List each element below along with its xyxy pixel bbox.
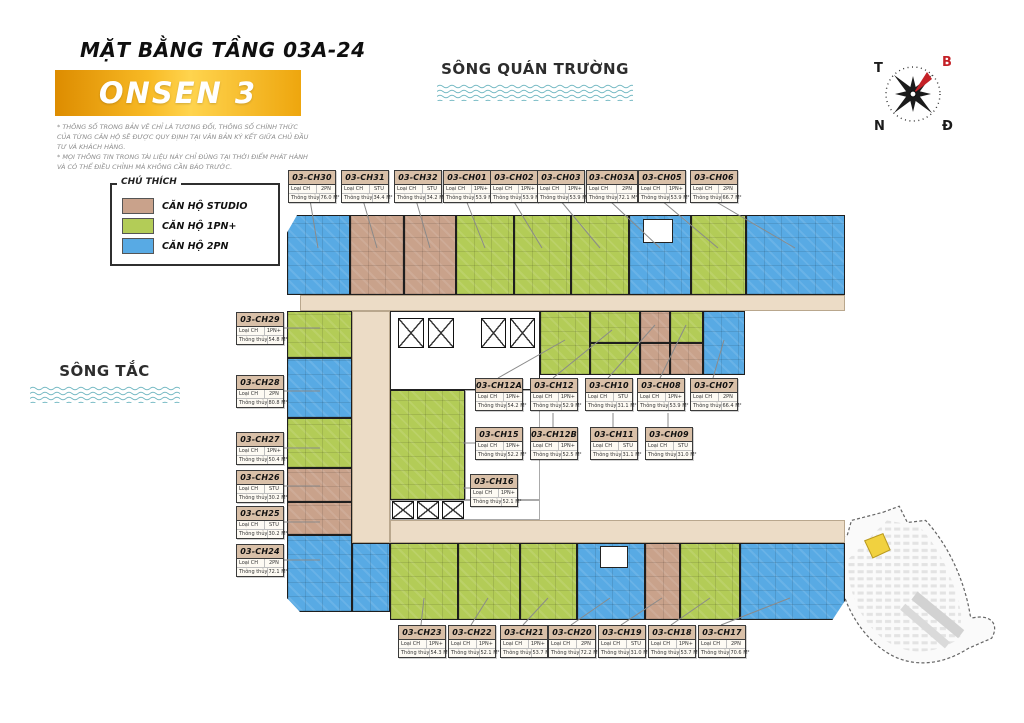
unit-area-label: Thông thủy — [476, 402, 507, 410]
unit-type-row: Loại CHSTU — [591, 442, 637, 450]
unit-id: 03-CH01 — [444, 171, 490, 185]
unit-area-value: 66.7 M² — [722, 194, 741, 202]
unit-type-value: STU — [627, 640, 645, 648]
unit-tag-03-CH19: 03-CH19Loại CHSTUThông thủy31.0 M² — [598, 625, 646, 658]
unit-area-row: Thông thủy53.9 M² — [491, 193, 537, 202]
unit-area-value: 53.9 M² — [669, 402, 688, 410]
unit-area-value: 76.0 M² — [320, 194, 339, 202]
unit-type-row: Loại CH1PN+ — [237, 327, 283, 335]
unit-area-row: Thông thủy53.9 M² — [538, 193, 584, 202]
unit-tag-03-CH01: 03-CH01Loại CH1PN+Thông thủy53.9 M² — [443, 170, 491, 203]
unit-type-label: Loại CH — [591, 442, 619, 450]
unit-area-label: Thông thủy — [699, 649, 730, 657]
unit-type-row: Loại CH2PN — [691, 393, 737, 401]
unit-area-row: Thông thủy31.0 M² — [599, 648, 645, 657]
unit-type-value: STU — [370, 185, 388, 193]
unit-area-row: Thông thủy54.3 M² — [399, 648, 445, 657]
unit-tag-03-CH16: 03-CH16Loại CH1PN+Thông thủy52.1 M² — [470, 474, 518, 507]
unit-area-value: 53.7 M² — [680, 649, 699, 657]
unit-area-row: Thông thủy53.7 M² — [501, 648, 547, 657]
unit-id: 03-CH12B — [531, 428, 577, 442]
unit-type-label: Loại CH — [491, 185, 519, 193]
unit-type-value: 2PN — [265, 559, 283, 567]
unit-area-row: Thông thủy53.9 M² — [444, 193, 490, 202]
unit-type-row: Loại CHSTU — [586, 393, 632, 401]
unit-id: 03-CH32 — [395, 171, 441, 185]
unit-area-row: Thông thủy50.4 M² — [237, 455, 283, 464]
unit-tag-03-CH17: 03-CH17Loại CH2PNThông thủy70.6 M² — [698, 625, 746, 658]
unit-area-row: Thông thủy52.1 M² — [471, 497, 517, 506]
unit-type-label: Loại CH — [476, 442, 504, 450]
unit-area-row: Thông thủy31.1 M² — [586, 401, 632, 410]
unit-id: 03-CH31 — [342, 171, 388, 185]
unit-id: 03-CH20 — [549, 626, 595, 640]
unit-type-label: Loại CH — [237, 327, 265, 335]
unit-type-label: Loại CH — [476, 393, 504, 401]
unit-type-value: 1PN+ — [472, 185, 490, 193]
unit-type-row: Loại CH1PN+ — [491, 185, 537, 193]
unit-type-value: 1PN+ — [559, 442, 577, 450]
unit-area-value: 34.4 M² — [373, 194, 392, 202]
unit-tag-03-CH07: 03-CH07Loại CH2PNThông thủy66.4 M² — [690, 378, 738, 411]
unit-tag-03-CH29: 03-CH29Loại CH1PN+Thông thủy54.8 M² — [236, 312, 284, 345]
unit-area-value: 52.1 M² — [502, 498, 521, 506]
unit-type-row: Loại CH2PN — [587, 185, 637, 193]
unit-type-label: Loại CH — [649, 640, 677, 648]
unit-id: 03-CH03 — [538, 171, 584, 185]
unit-type-value: 1PN+ — [677, 640, 695, 648]
unit-type-label: Loại CH — [395, 185, 423, 193]
unit-type-row: Loại CH2PN — [699, 640, 745, 648]
unit-area-value: 30.2 M² — [268, 530, 287, 538]
unit-type-row: Loại CHSTU — [237, 521, 283, 529]
unit-area-label: Thông thủy — [639, 194, 670, 202]
unit-area-value: 31.1 M² — [622, 451, 641, 459]
unit-tag-03-CH09: 03-CH09Loại CHSTUThông thủy31.0 M² — [645, 427, 693, 460]
unit-type-value: 2PN — [617, 185, 637, 193]
unit-area-value: 70.6 M² — [730, 649, 749, 657]
unit-area-row: Thông thủy34.4 M² — [342, 193, 388, 202]
unit-type-label: Loại CH — [549, 640, 577, 648]
unit-id: 03-CH11 — [591, 428, 637, 442]
unit-area-label: Thông thủy — [395, 194, 426, 202]
unit-tag-03-CH12A: 03-CH12ALoại CH1PN+Thông thủy54.2 M² — [475, 378, 523, 411]
unit-type-label: Loại CH — [237, 390, 265, 398]
unit-type-value: STU — [423, 185, 441, 193]
unit-type-value: 1PN+ — [559, 393, 577, 401]
unit-area-row: Thông thủy70.6 M² — [699, 648, 745, 657]
unit-area-label: Thông thủy — [471, 498, 502, 506]
unit-type-label: Loại CH — [639, 185, 667, 193]
unit-type-value: 1PN+ — [504, 442, 522, 450]
unit-tag-03-CH06: 03-CH06Loại CH2PNThông thủy66.7 M² — [690, 170, 738, 203]
unit-area-value: 52.2 M² — [507, 451, 526, 459]
unit-area-row: Thông thủy72.1 M² — [237, 567, 283, 576]
unit-tag-03-CH15: 03-CH15Loại CH1PN+Thông thủy52.2 M² — [475, 427, 523, 460]
unit-id: 03-CH18 — [649, 626, 695, 640]
unit-area-label: Thông thủy — [237, 399, 268, 407]
unit-type-value: STU — [614, 393, 632, 401]
unit-area-value: 31.1 M² — [617, 402, 636, 410]
unit-type-value: 1PN+ — [499, 489, 517, 497]
unit-type-row: Loại CH1PN+ — [531, 393, 577, 401]
unit-area-value: 31.0 M² — [677, 451, 696, 459]
unit-area-row: Thông thủy54.2 M² — [476, 401, 522, 410]
unit-area-label: Thông thủy — [649, 649, 680, 657]
unit-type-value: 1PN+ — [667, 185, 685, 193]
unit-area-row: Thông thủy54.8 M² — [237, 335, 283, 344]
unit-type-value: 1PN+ — [427, 640, 445, 648]
unit-area-label: Thông thủy — [476, 451, 507, 459]
unit-area-label: Thông thủy — [691, 194, 722, 202]
unit-id: 03-CH29 — [237, 313, 283, 327]
unit-area-row: Thông thủy53.9 M² — [638, 401, 684, 410]
unit-type-value: STU — [265, 485, 283, 493]
unit-id: 03-CH16 — [471, 475, 517, 489]
unit-area-row: Thông thủy76.0 M² — [289, 193, 335, 202]
unit-type-value: 2PN — [727, 640, 745, 648]
unit-area-label: Thông thủy — [444, 194, 475, 202]
unit-type-row: Loại CH1PN+ — [476, 442, 522, 450]
unit-area-value: 30.2 M² — [268, 494, 287, 502]
unit-type-label: Loại CH — [399, 640, 427, 648]
unit-type-label: Loại CH — [691, 185, 719, 193]
unit-area-value: 80.8 M² — [268, 399, 287, 407]
unit-type-label: Loại CH — [289, 185, 317, 193]
unit-area-row: Thông thủy72.2 M² — [549, 648, 595, 657]
unit-area-label: Thông thủy — [501, 649, 532, 657]
unit-type-label: Loại CH — [587, 185, 617, 193]
unit-id: 03-CH06 — [691, 171, 737, 185]
unit-area-value: 52.1 M² — [480, 649, 499, 657]
unit-area-row: Thông thủy30.2 M² — [237, 529, 283, 538]
unit-type-label: Loại CH — [501, 640, 529, 648]
unit-type-row: Loại CH1PN+ — [471, 489, 517, 497]
unit-area-label: Thông thủy — [449, 649, 480, 657]
unit-id: 03-CH27 — [237, 433, 283, 447]
unit-type-row: Loại CH1PN+ — [638, 393, 684, 401]
unit-area-label: Thông thủy — [237, 456, 268, 464]
unit-tag-03-CH18: 03-CH18Loại CH1PN+Thông thủy53.7 M² — [648, 625, 696, 658]
unit-tag-03-CH21: 03-CH21Loại CH1PN+Thông thủy53.7 M² — [500, 625, 548, 658]
unit-type-label: Loại CH — [586, 393, 614, 401]
unit-tag-03-CH26: 03-CH26Loại CHSTUThông thủy30.2 M² — [236, 470, 284, 503]
unit-area-value: 72.1 M² — [268, 568, 287, 576]
unit-id: 03-CH28 — [237, 376, 283, 390]
unit-type-row: Loại CH2PN — [549, 640, 595, 648]
unit-type-value: 1PN+ — [265, 327, 283, 335]
unit-type-label: Loại CH — [599, 640, 627, 648]
unit-id: 03-CH17 — [699, 626, 745, 640]
unit-type-row: Loại CH1PN+ — [501, 640, 547, 648]
unit-type-value: 2PN — [719, 393, 737, 401]
unit-tag-03-CH02: 03-CH02Loại CH1PN+Thông thủy53.9 M² — [490, 170, 538, 203]
unit-area-row: Thông thủy52.9 M² — [531, 401, 577, 410]
unit-area-row: Thông thủy52.1 M² — [449, 648, 495, 657]
unit-type-value: 2PN — [719, 185, 737, 193]
unit-id: 03-CH09 — [646, 428, 692, 442]
unit-type-label: Loại CH — [531, 393, 559, 401]
unit-type-label: Loại CH — [538, 185, 566, 193]
unit-type-row: Loại CHSTU — [342, 185, 388, 193]
unit-area-row: Thông thủy72.1 M² — [587, 193, 637, 202]
unit-area-row: Thông thủy52.5 M² — [531, 450, 577, 459]
unit-tag-03-CH12: 03-CH12Loại CH1PN+Thông thủy52.9 M² — [530, 378, 578, 411]
unit-tag-03-CH24: 03-CH24Loại CH2PNThông thủy72.1 M² — [236, 544, 284, 577]
unit-tag-03-CH31: 03-CH31Loại CHSTUThông thủy34.4 M² — [341, 170, 389, 203]
unit-tag-03-CH03: 03-CH03Loại CH1PN+Thông thủy53.9 M² — [537, 170, 585, 203]
unit-type-label: Loại CH — [449, 640, 477, 648]
unit-area-label: Thông thủy — [289, 194, 320, 202]
unit-id: 03-CH12A — [476, 379, 522, 393]
unit-area-label: Thông thủy — [531, 402, 562, 410]
unit-type-value: STU — [265, 521, 283, 529]
unit-area-row: Thông thủy31.0 M² — [646, 450, 692, 459]
unit-type-value: STU — [674, 442, 692, 450]
unit-area-label: Thông thủy — [549, 649, 580, 657]
unit-area-value: 54.8 M² — [268, 336, 287, 344]
unit-area-label: Thông thủy — [237, 336, 268, 344]
unit-type-label: Loại CH — [646, 442, 674, 450]
unit-id: 03-CH02 — [491, 171, 537, 185]
unit-id: 03-CH12 — [531, 379, 577, 393]
unit-type-row: Loại CHSTU — [237, 485, 283, 493]
unit-id: 03-CH10 — [586, 379, 632, 393]
unit-area-value: 54.3 M² — [430, 649, 449, 657]
unit-type-row: Loại CHSTU — [395, 185, 441, 193]
unit-type-value: 1PN+ — [265, 447, 283, 455]
unit-type-row: Loại CH1PN+ — [639, 185, 685, 193]
unit-tag-03-CH10: 03-CH10Loại CHSTUThông thủy31.1 M² — [585, 378, 633, 411]
unit-tags: 03-CH30Loại CH2PNThông thủy76.0 M²03-CH3… — [0, 0, 1024, 723]
unit-type-row: Loại CH2PN — [237, 390, 283, 398]
unit-area-label: Thông thủy — [586, 402, 617, 410]
unit-type-row: Loại CH1PN+ — [538, 185, 584, 193]
unit-id: 03-CH22 — [449, 626, 495, 640]
unit-id: 03-CH05 — [639, 171, 685, 185]
unit-type-label: Loại CH — [471, 489, 499, 497]
unit-tag-03-CH27: 03-CH27Loại CH1PN+Thông thủy50.4 M² — [236, 432, 284, 465]
unit-area-row: Thông thủy31.1 M² — [591, 450, 637, 459]
unit-type-value: 2PN — [265, 390, 283, 398]
unit-tag-03-CH11: 03-CH11Loại CHSTUThông thủy31.1 M² — [590, 427, 638, 460]
unit-id: 03-CH21 — [501, 626, 547, 640]
unit-type-label: Loại CH — [444, 185, 472, 193]
unit-type-label: Loại CH — [699, 640, 727, 648]
unit-type-label: Loại CH — [638, 393, 666, 401]
unit-id: 03-CH08 — [638, 379, 684, 393]
unit-tag-03-CH32: 03-CH32Loại CHSTUThông thủy34.2 M² — [394, 170, 442, 203]
unit-area-label: Thông thủy — [638, 402, 669, 410]
unit-id: 03-CH25 — [237, 507, 283, 521]
unit-id: 03-CH19 — [599, 626, 645, 640]
unit-type-label: Loại CH — [342, 185, 370, 193]
unit-type-value: 1PN+ — [519, 185, 537, 193]
floorplan-page: MẶT BẰNG TẦNG 03A-24 ONSEN 3 * THÔNG SỐ … — [0, 0, 1024, 723]
unit-id: 03-CH24 — [237, 545, 283, 559]
unit-area-label: Thông thủy — [646, 451, 677, 459]
unit-id: 03-CH30 — [289, 171, 335, 185]
unit-type-row: Loại CH1PN+ — [476, 393, 522, 401]
unit-area-value: 72.1 M² — [618, 194, 637, 202]
unit-type-value: 2PN — [577, 640, 595, 648]
unit-area-label: Thông thủy — [599, 649, 630, 657]
unit-id: 03-CH07 — [691, 379, 737, 393]
unit-type-label: Loại CH — [691, 393, 719, 401]
unit-area-label: Thông thủy — [399, 649, 430, 657]
unit-type-label: Loại CH — [237, 485, 265, 493]
unit-area-row: Thông thủy53.7 M² — [649, 648, 695, 657]
unit-area-label: Thông thủy — [591, 451, 622, 459]
unit-type-row: Loại CH1PN+ — [237, 447, 283, 455]
unit-tag-03-CH23: 03-CH23Loại CH1PN+Thông thủy54.3 M² — [398, 625, 446, 658]
unit-id: 03-CH03A — [587, 171, 637, 185]
unit-id: 03-CH15 — [476, 428, 522, 442]
unit-type-row: Loại CH1PN+ — [399, 640, 445, 648]
unit-tag-03-CH30: 03-CH30Loại CH2PNThông thủy76.0 M² — [288, 170, 336, 203]
unit-type-value: 1PN+ — [666, 393, 684, 401]
unit-tag-03-CH20: 03-CH20Loại CH2PNThông thủy72.2 M² — [548, 625, 596, 658]
unit-tag-03-CH03A: 03-CH03ALoại CH2PNThông thủy72.1 M² — [586, 170, 638, 203]
unit-area-value: 52.9 M² — [562, 402, 581, 410]
unit-area-value: 54.2 M² — [507, 402, 526, 410]
unit-area-label: Thông thủy — [587, 194, 618, 202]
unit-area-value: 66.4 M² — [722, 402, 741, 410]
unit-type-value: 1PN+ — [566, 185, 584, 193]
unit-area-label: Thông thủy — [237, 530, 268, 538]
unit-area-label: Thông thủy — [691, 402, 722, 410]
unit-area-value: 31.0 M² — [630, 649, 649, 657]
unit-type-row: Loại CHSTU — [646, 442, 692, 450]
unit-type-label: Loại CH — [237, 447, 265, 455]
unit-id: 03-CH26 — [237, 471, 283, 485]
unit-tag-03-CH08: 03-CH08Loại CH1PN+Thông thủy53.9 M² — [637, 378, 685, 411]
unit-type-value: 1PN+ — [504, 393, 522, 401]
unit-type-label: Loại CH — [237, 521, 265, 529]
unit-type-row: Loại CH2PN — [691, 185, 737, 193]
unit-area-row: Thông thủy53.9 M² — [639, 193, 685, 202]
unit-area-label: Thông thủy — [237, 494, 268, 502]
unit-type-value: 1PN+ — [529, 640, 547, 648]
unit-area-label: Thông thủy — [342, 194, 373, 202]
unit-type-row: Loại CH1PN+ — [531, 442, 577, 450]
unit-tag-03-CH22: 03-CH22Loại CH1PN+Thông thủy52.1 M² — [448, 625, 496, 658]
unit-area-value: 72.2 M² — [580, 649, 599, 657]
unit-type-row: Loại CH1PN+ — [449, 640, 495, 648]
unit-area-label: Thông thủy — [491, 194, 522, 202]
unit-area-label: Thông thủy — [237, 568, 268, 576]
unit-type-row: Loại CHSTU — [599, 640, 645, 648]
unit-area-value: 52.5 M² — [562, 451, 581, 459]
unit-type-value: 1PN+ — [477, 640, 495, 648]
unit-area-row: Thông thủy30.2 M² — [237, 493, 283, 502]
unit-type-row: Loại CH1PN+ — [649, 640, 695, 648]
unit-type-row: Loại CH2PN — [289, 185, 335, 193]
unit-area-label: Thông thủy — [538, 194, 569, 202]
unit-type-label: Loại CH — [237, 559, 265, 567]
unit-id: 03-CH23 — [399, 626, 445, 640]
unit-area-value: 50.4 M² — [268, 456, 287, 464]
unit-tag-03-CH25: 03-CH25Loại CHSTUThông thủy30.2 M² — [236, 506, 284, 539]
unit-tag-03-CH05: 03-CH05Loại CH1PN+Thông thủy53.9 M² — [638, 170, 686, 203]
unit-type-value: STU — [619, 442, 637, 450]
unit-type-label: Loại CH — [531, 442, 559, 450]
unit-tag-03-CH12B: 03-CH12BLoại CH1PN+Thông thủy52.5 M² — [530, 427, 578, 460]
unit-type-row: Loại CH2PN — [237, 559, 283, 567]
unit-area-row: Thông thủy66.4 M² — [691, 401, 737, 410]
unit-type-row: Loại CH1PN+ — [444, 185, 490, 193]
unit-area-row: Thông thủy80.8 M² — [237, 398, 283, 407]
unit-area-row: Thông thủy34.2 M² — [395, 193, 441, 202]
unit-tag-03-CH28: 03-CH28Loại CH2PNThông thủy80.8 M² — [236, 375, 284, 408]
unit-area-row: Thông thủy52.2 M² — [476, 450, 522, 459]
unit-area-label: Thông thủy — [531, 451, 562, 459]
unit-type-value: 2PN — [317, 185, 335, 193]
unit-area-row: Thông thủy66.7 M² — [691, 193, 737, 202]
unit-area-value: 53.9 M² — [670, 194, 689, 202]
